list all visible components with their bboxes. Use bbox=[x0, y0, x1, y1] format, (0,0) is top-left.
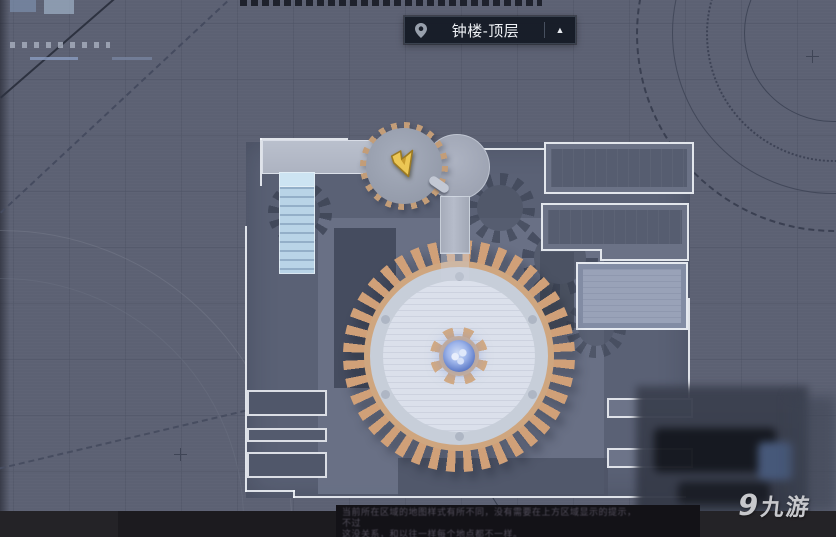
gear-notch bbox=[381, 390, 390, 399]
left-edge-shade bbox=[0, 0, 10, 537]
objective-marker-icon[interactable] bbox=[386, 146, 422, 182]
dashed-guide-line bbox=[0, 0, 243, 213]
gear-notch bbox=[528, 390, 537, 399]
wall-line-bottom bbox=[245, 490, 295, 492]
wall-slot-left bbox=[247, 390, 327, 416]
hud-fragment bbox=[44, 0, 74, 14]
crosshair-mark bbox=[174, 448, 187, 461]
location-label: 钟楼-顶层 bbox=[427, 20, 544, 41]
collapse-button[interactable]: ▲ bbox=[545, 25, 575, 35]
hud-dot-row bbox=[10, 42, 110, 48]
room-mid-right-extension bbox=[600, 249, 689, 261]
caption-line-1: 当前所在区域的地图样式有所不同，没有需要在上方区域显示的提示，不过 bbox=[342, 507, 642, 529]
hub-blue-core bbox=[443, 340, 475, 372]
corridor-vertical-overlap bbox=[441, 252, 469, 280]
wall-slot-left bbox=[247, 428, 327, 442]
hud-fragment bbox=[10, 0, 36, 12]
compass-arc bbox=[672, 0, 836, 194]
guide-line bbox=[0, 0, 122, 99]
watermark: 9 九游 bbox=[738, 488, 811, 522]
caption-line-2: 这没关系，和以往一样每个地点都不一样。 bbox=[342, 529, 642, 537]
location-pin-icon bbox=[415, 23, 427, 38]
staircase bbox=[279, 186, 315, 274]
gear-notch bbox=[381, 315, 390, 324]
wall-slot-left bbox=[247, 452, 327, 478]
watermark-text: 九游 bbox=[759, 488, 813, 522]
compass-arc bbox=[744, 0, 836, 122]
watermark-logo-icon: 9 bbox=[735, 491, 760, 520]
compass-arc bbox=[706, 0, 836, 162]
gear-notch bbox=[455, 432, 464, 441]
location-selector[interactable]: 钟楼-顶层 ▲ bbox=[404, 16, 576, 44]
corridor-vertical bbox=[440, 196, 470, 254]
cropped-top-text bbox=[240, 0, 542, 6]
bottom-bar-segment bbox=[118, 511, 336, 537]
wall-line-top bbox=[478, 148, 544, 150]
hud-tick bbox=[112, 57, 152, 60]
wall-line-bottom bbox=[293, 496, 686, 498]
gear-notch bbox=[528, 315, 537, 324]
wall-line-left bbox=[245, 226, 247, 492]
game-map-screen: 当前所在区域的地图样式有所不同，没有需要在上方区域显示的提示，不过 这没关系，和… bbox=[0, 0, 836, 537]
gear-hub bbox=[430, 327, 488, 385]
subtitle-caption: 当前所在区域的地图样式有所不同，没有需要在上方区域显示的提示，不过 这没关系，和… bbox=[342, 507, 642, 537]
compass-arc bbox=[0, 278, 244, 537]
wall-line-right bbox=[688, 298, 690, 398]
room-lower-right bbox=[576, 262, 688, 330]
hud-tick bbox=[30, 57, 78, 60]
room-top-right bbox=[544, 142, 694, 194]
crosshair-mark bbox=[806, 50, 819, 63]
